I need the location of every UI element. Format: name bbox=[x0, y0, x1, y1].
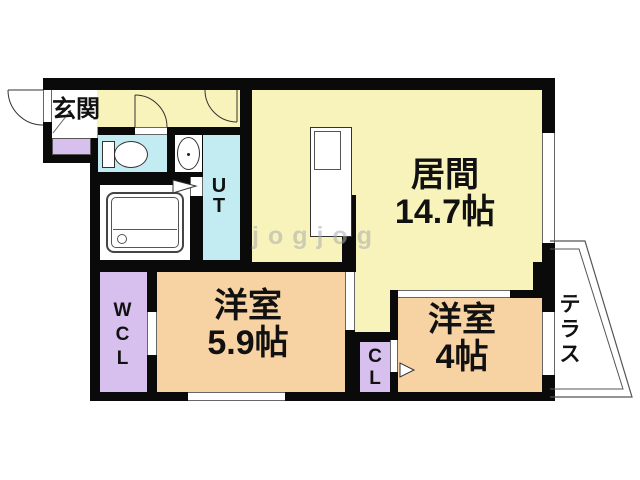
bathroom-door-opening bbox=[190, 177, 203, 196]
wcl-label: WCL bbox=[110, 299, 135, 371]
cl-label: CL bbox=[365, 346, 385, 390]
bedroom1-door-opening bbox=[345, 272, 355, 330]
genkan-label: 玄関 bbox=[52, 97, 100, 123]
toilet-door-opening bbox=[135, 127, 167, 135]
hallway-floor bbox=[97, 90, 240, 127]
bedroom1-label: 洋室 5.9帖 bbox=[160, 288, 336, 361]
bathtub-drain bbox=[117, 234, 127, 244]
bathtub-ledge-line bbox=[113, 229, 177, 230]
bedroom2-sliding-opening bbox=[398, 290, 510, 298]
bedroom2-label: 洋室 4帖 bbox=[392, 302, 532, 375]
wcl-door-opening bbox=[147, 312, 157, 355]
bedroom1-window bbox=[188, 392, 285, 401]
living-room-name: 居間 bbox=[411, 156, 479, 194]
floor-plan: jogjog 玄関 居間 14.7帖 洋室 5.9帖 洋室 4帖 WCL CL … bbox=[0, 0, 640, 480]
living-room-corridor-nook bbox=[355, 262, 390, 332]
living-room-window bbox=[542, 133, 555, 243]
watermark-text: jogjog bbox=[252, 222, 381, 251]
entrance-door-arc bbox=[8, 90, 43, 125]
kitchen-sink bbox=[314, 131, 341, 170]
bedroom1-name: 洋室 bbox=[214, 287, 282, 325]
bedroom2-window bbox=[542, 312, 555, 375]
living-room-floor-lower bbox=[390, 262, 533, 290]
bedroom2-name: 洋室 bbox=[428, 301, 496, 339]
bedroom1-size: 5.9帖 bbox=[207, 324, 288, 362]
toilet-bowl bbox=[114, 141, 148, 168]
terrace-label: テラス bbox=[557, 292, 583, 367]
genkan-shoe-cabinet bbox=[52, 138, 91, 155]
living-room-size: 14.7帖 bbox=[395, 193, 495, 231]
washbasin-faucet-dot bbox=[187, 153, 190, 156]
entrance-door-opening bbox=[43, 90, 52, 122]
bedroom2-size: 4帖 bbox=[436, 338, 489, 376]
living-room-label: 居間 14.7帖 bbox=[365, 157, 525, 230]
ut-label: UT bbox=[209, 176, 229, 216]
